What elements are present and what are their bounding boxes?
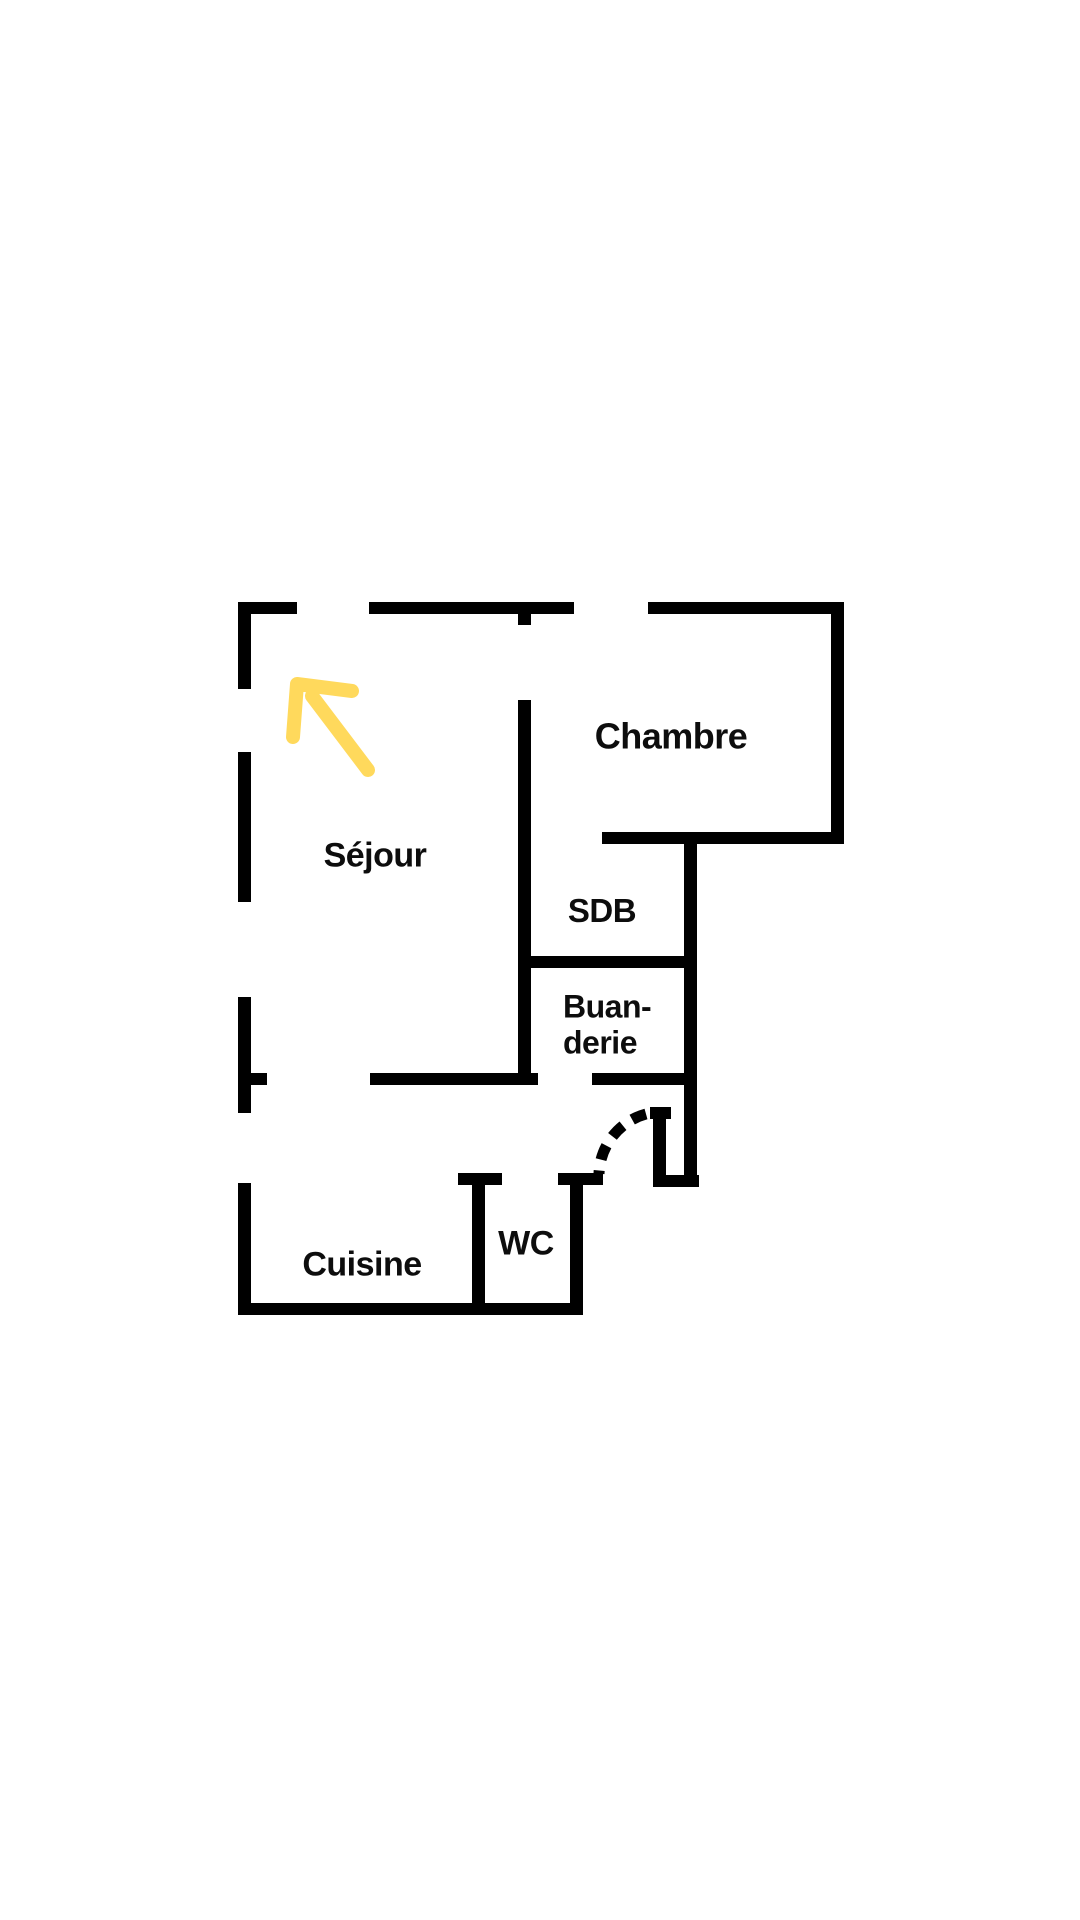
wall-segment bbox=[238, 997, 251, 1113]
floorplan-svg bbox=[0, 0, 1080, 1920]
wall-segment bbox=[592, 1073, 696, 1085]
wall-segment bbox=[684, 832, 697, 1187]
floorplan-canvas: Séjour Chambre SDB Buan- derie WC Cuisin… bbox=[0, 0, 1080, 1920]
room-label-sejour: Séjour bbox=[324, 837, 427, 876]
wall-segment bbox=[472, 1173, 485, 1315]
room-label-wc: WC bbox=[498, 1225, 554, 1264]
highlight-arrow-icon bbox=[293, 684, 368, 770]
wall-segment bbox=[648, 602, 844, 614]
wall-segment bbox=[570, 1173, 583, 1315]
door-swing-arc bbox=[599, 1114, 646, 1174]
wall-segment bbox=[518, 700, 531, 1085]
wall-segment bbox=[653, 1107, 666, 1187]
wall-segment bbox=[238, 752, 251, 902]
wall-segment bbox=[238, 1303, 580, 1315]
wall-segment bbox=[238, 602, 251, 689]
wall-segment bbox=[238, 1183, 251, 1315]
room-label-buanderie: Buan- derie bbox=[563, 989, 651, 1062]
highlight-arrow-shaft bbox=[312, 696, 368, 770]
room-label-cuisine: Cuisine bbox=[302, 1246, 421, 1285]
wall-segment bbox=[369, 602, 574, 614]
wall-segment bbox=[518, 602, 531, 625]
wall-segment bbox=[518, 956, 696, 968]
wall-segment bbox=[831, 602, 844, 844]
room-label-sdb: SDB bbox=[568, 892, 636, 930]
wall-segment bbox=[370, 1073, 538, 1085]
wall-segment bbox=[602, 832, 844, 844]
room-label-chambre: Chambre bbox=[595, 715, 748, 756]
